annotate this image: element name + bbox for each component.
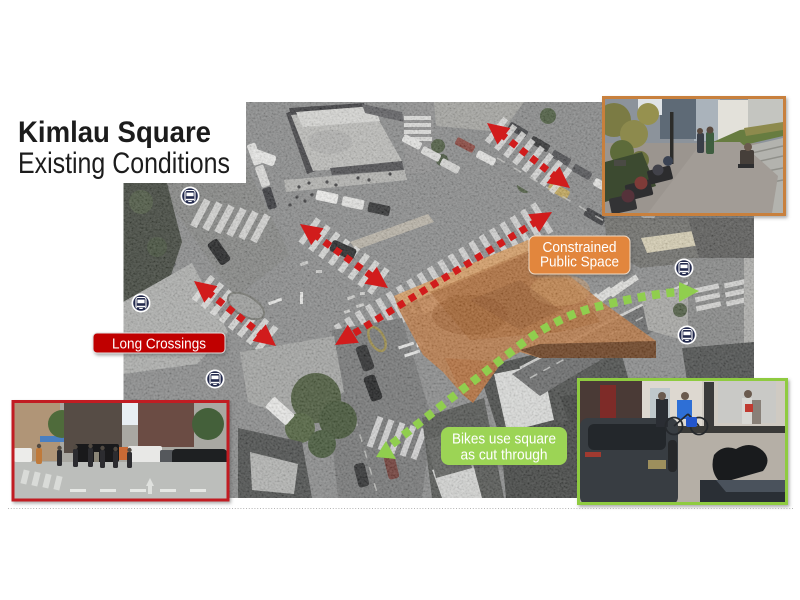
svg-text:Public Space: Public Space <box>540 255 619 271</box>
svg-text:Kimlau Square: Kimlau Square <box>18 116 211 149</box>
svg-text:Long Crossings: Long Crossings <box>112 336 206 353</box>
svg-text:as cut through: as cut through <box>461 447 548 464</box>
svg-text:Bikes use square: Bikes use square <box>452 431 556 448</box>
svg-text:Existing Conditions: Existing Conditions <box>18 147 230 180</box>
